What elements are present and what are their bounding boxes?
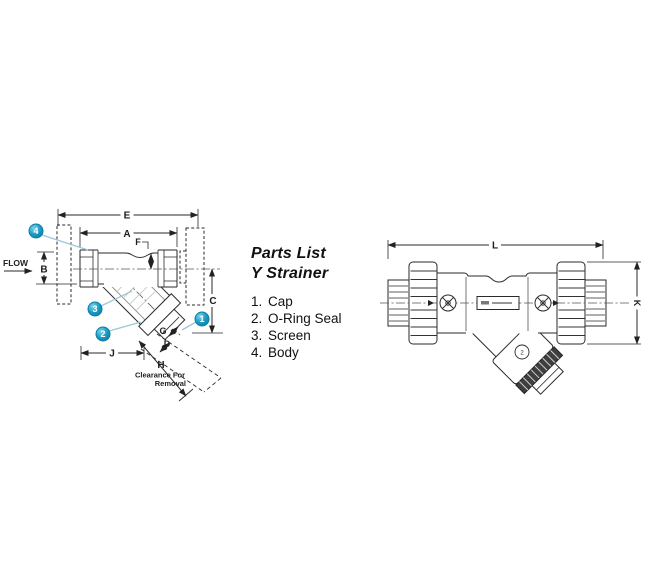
flow-indicator: FLOW — [3, 258, 32, 271]
screw-icon-right — [535, 295, 551, 311]
dim-label-K: K — [632, 300, 642, 307]
dim-label-J: J — [109, 349, 115, 360]
callout-1-number: 1 — [199, 314, 204, 324]
callout-1: 1 — [195, 312, 209, 326]
dim-label-G: G — [159, 326, 166, 336]
parts-list-item: 2.O-Ring Seal — [251, 310, 381, 327]
parts-list-item-number: 2. — [251, 310, 268, 327]
callout-3-number: 3 — [92, 304, 97, 314]
parts-list-items: 1.Cap 2.O-Ring Seal 3.Screen 4.Body — [251, 293, 381, 361]
dim-label-L: L — [492, 241, 498, 252]
parts-list-item: 3.Screen — [251, 327, 381, 344]
parts-list-item-name: Screen — [268, 328, 311, 343]
right-diagram: 2 L K — [380, 239, 643, 402]
dim-label-B: B — [40, 265, 47, 276]
callout-4-number: 4 — [33, 226, 38, 236]
dim-label-F: F — [135, 237, 141, 247]
callout-4: 4 — [29, 224, 43, 238]
parts-list-title-line1: Parts List — [251, 244, 381, 264]
dimension-A: A — [80, 227, 177, 248]
parts-list-item: 4.Body — [251, 344, 381, 361]
flow-label: FLOW — [3, 258, 29, 268]
dimension-D: D — [160, 339, 171, 352]
parts-list-item-name: Cap — [268, 294, 293, 309]
parts-list-item-number: 3. — [251, 327, 268, 344]
dim-label-A: A — [123, 229, 130, 240]
parts-list-item-name: Body — [268, 345, 299, 360]
parts-list-item-number: 4. — [251, 344, 268, 361]
dim-label-D: D — [164, 339, 171, 349]
callout-3: 3 — [88, 302, 102, 316]
dim-label-H: H — [157, 360, 164, 371]
parts-list-item: 1.Cap — [251, 293, 381, 310]
screw-icon-left — [440, 295, 456, 311]
clearance-note-line2: Removal — [155, 379, 186, 388]
left-diagram-pipe-mask — [80, 250, 177, 287]
left-diagram: E A B FLOW F — [3, 209, 223, 402]
dimension-E: E — [58, 209, 198, 228]
dimension-J: J — [81, 346, 144, 360]
dim-label-E: E — [124, 211, 131, 222]
molded-label-plate — [477, 297, 519, 310]
cap-mold-mark: 2 — [515, 345, 529, 359]
parts-list-item-name: O-Ring Seal — [268, 311, 342, 326]
parts-list-title-line2: Y Strainer — [251, 264, 381, 284]
callout-2-number: 2 — [100, 329, 105, 339]
parts-list: Parts List Y Strainer 1.Cap 2.O-Ring Sea… — [251, 244, 381, 361]
parts-list-item-number: 1. — [251, 293, 268, 310]
dimension-L: L — [388, 239, 603, 260]
callout-2: 2 — [96, 327, 110, 341]
dim-label-C: C — [209, 296, 216, 307]
